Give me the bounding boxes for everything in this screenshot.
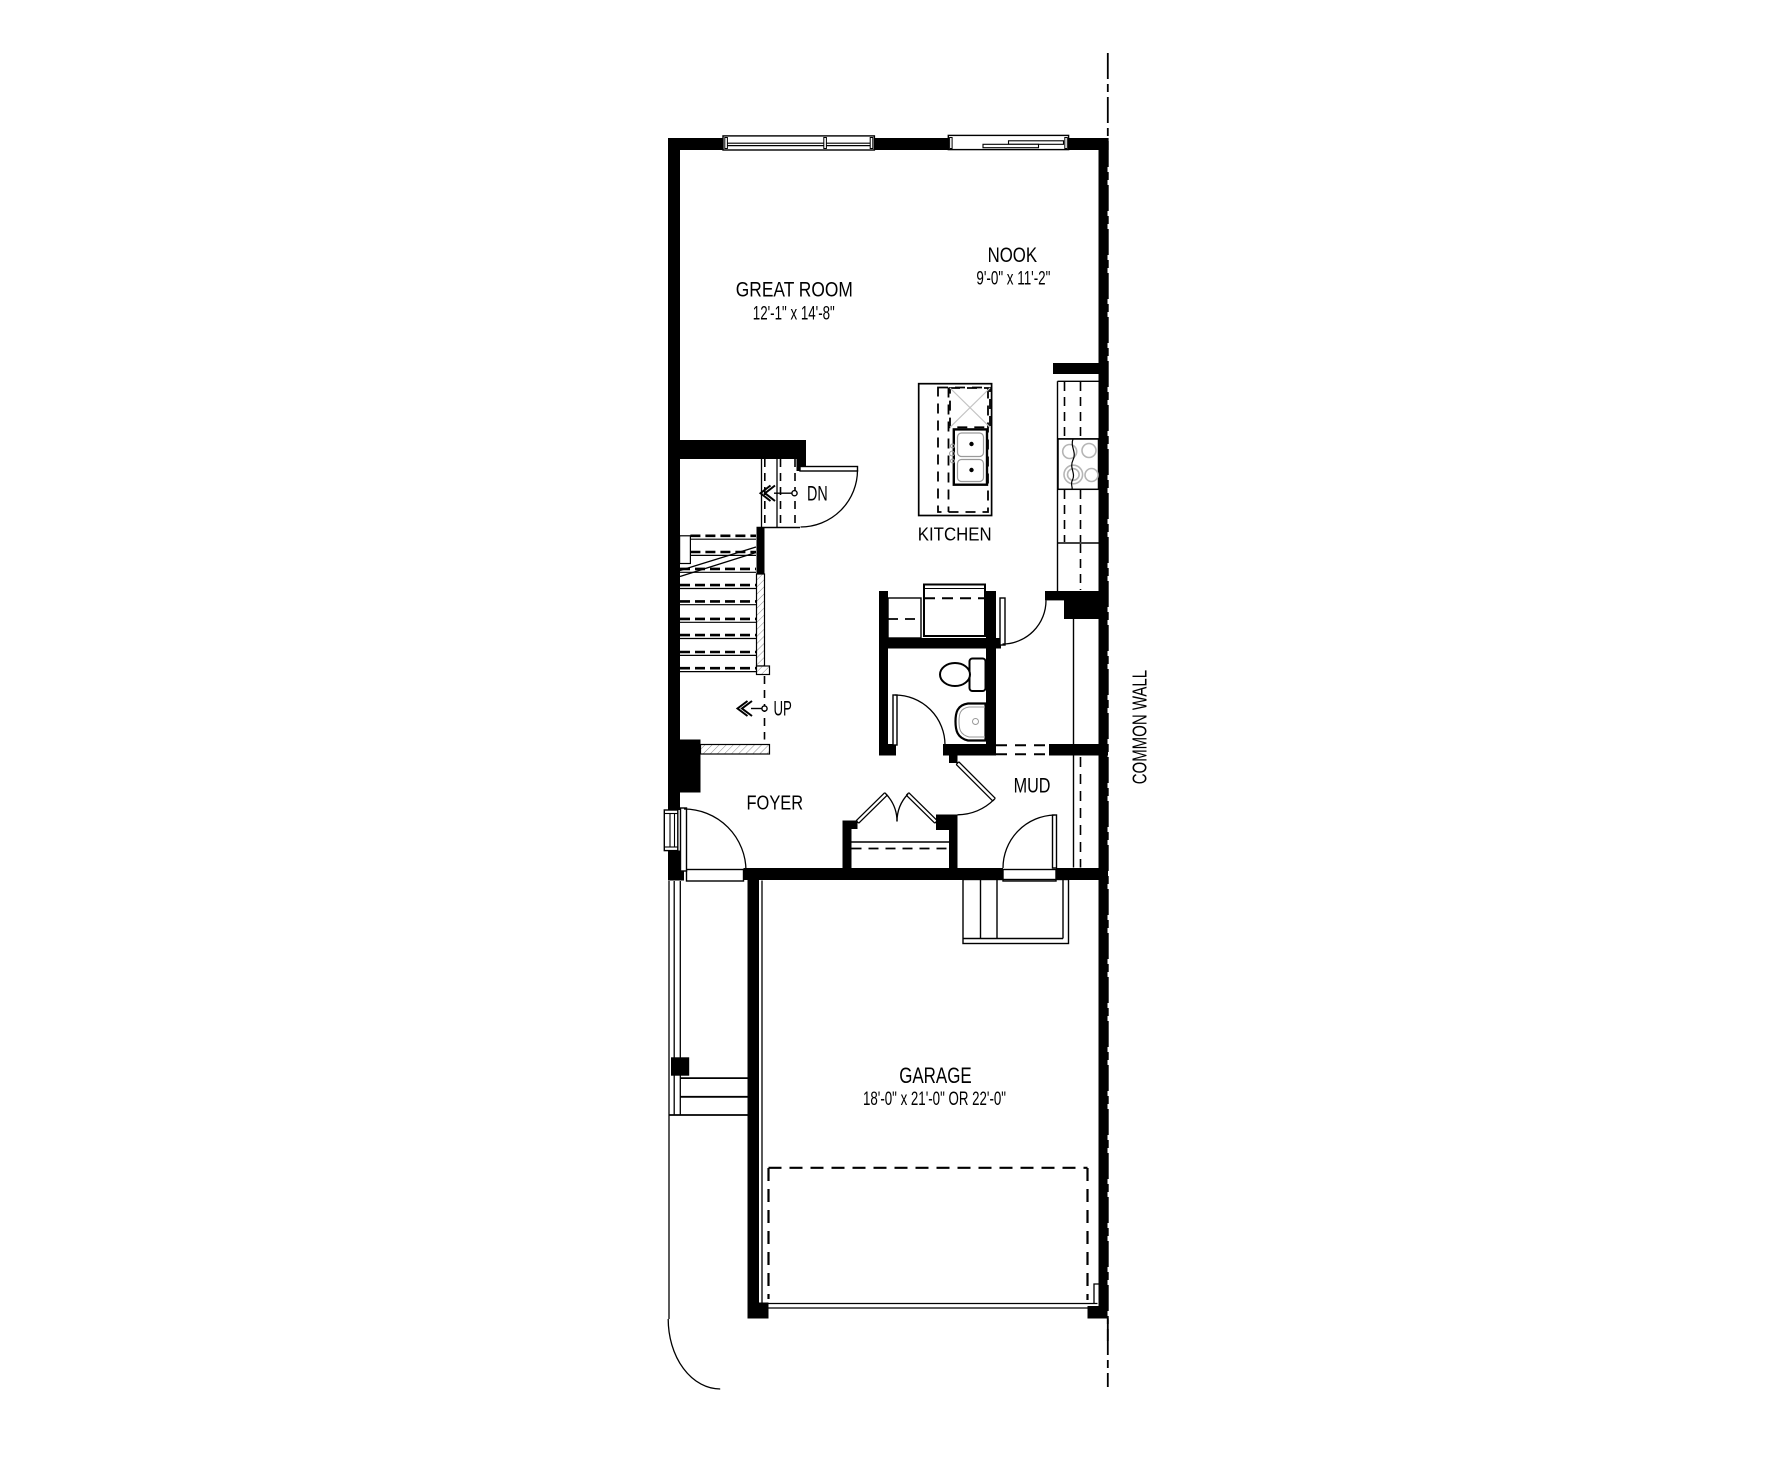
svg-text:18'-0" x 21'-0" OR 22'-0": 18'-0" x 21'-0" OR 22'-0": [863, 1089, 1006, 1110]
svg-text:GARAGE: GARAGE: [899, 1063, 972, 1088]
svg-text:DN: DN: [807, 483, 828, 506]
svg-text:MUD: MUD: [1014, 775, 1051, 798]
svg-text:12'-1" x 14'-8": 12'-1" x 14'-8": [753, 303, 835, 325]
svg-text:FOYER: FOYER: [747, 793, 804, 815]
svg-text:UP: UP: [774, 698, 792, 721]
svg-text:9'-0" x 11'-2": 9'-0" x 11'-2": [976, 268, 1050, 290]
svg-text:COMMON WALL: COMMON WALL: [1129, 670, 1152, 784]
svg-text:NOOK: NOOK: [988, 243, 1038, 267]
svg-text:KITCHEN: KITCHEN: [918, 524, 992, 545]
svg-text:GREAT ROOM: GREAT ROOM: [736, 278, 853, 302]
